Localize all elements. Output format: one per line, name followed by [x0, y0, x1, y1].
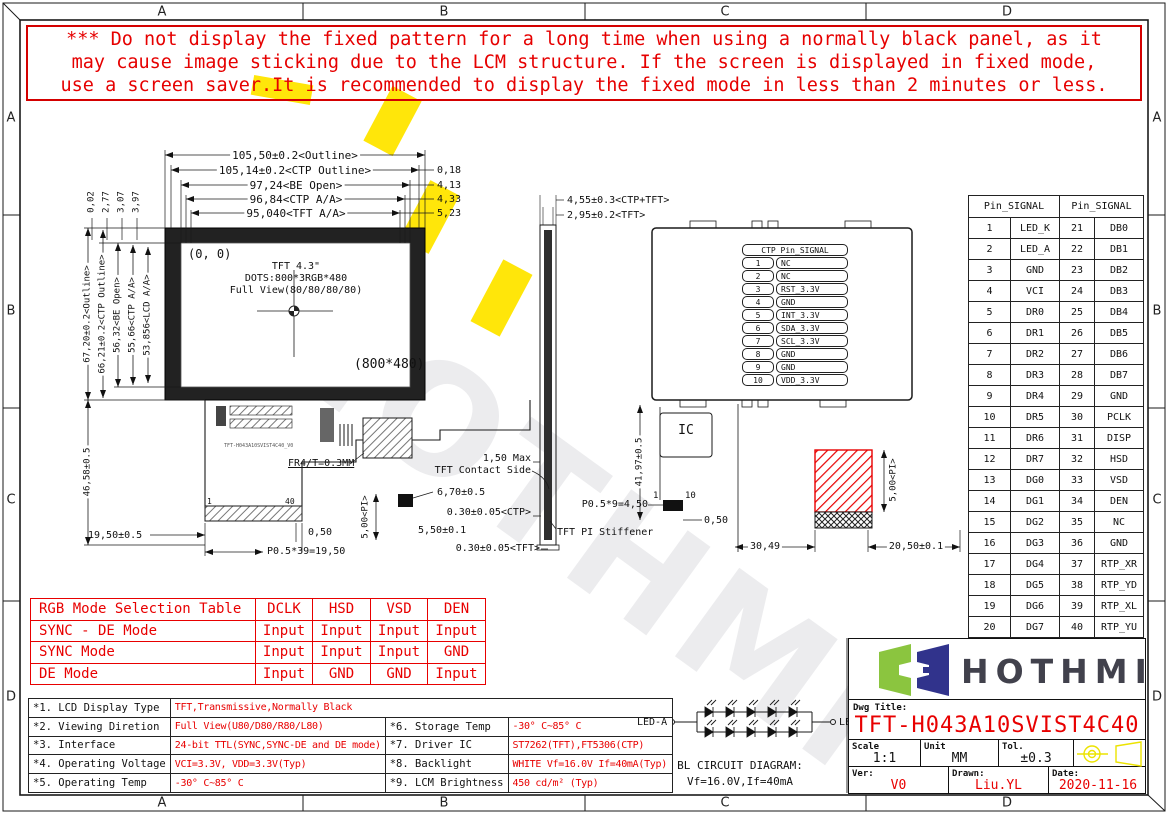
table-row: 9DR429GND [969, 386, 1144, 407]
table-cell: DB2 [1095, 260, 1144, 281]
dim-label: 67,20±0.2<Outline> [84, 263, 93, 365]
table-cell: 10 [969, 407, 1011, 428]
table-cell: 9 [742, 361, 774, 373]
table-cell: Input [256, 663, 313, 685]
dim-label: 5,00<PI> [890, 456, 899, 503]
spec-value: -30° C~85° C [170, 774, 385, 793]
table-cell: DG3 [1011, 533, 1060, 554]
rgb-header-cell: VSD [371, 599, 428, 621]
table-cell: 17 [969, 554, 1011, 575]
spec-value: 24-bit TTL(SYNC,SYNC-DE and DE mode) [170, 736, 385, 755]
table-row: 15DG235NC [969, 512, 1144, 533]
table-cell: HSD [1095, 449, 1144, 470]
table-row: 5DR025DB4 [969, 302, 1144, 323]
projection-cell [1074, 740, 1147, 766]
table-cell: DB1 [1095, 239, 1144, 260]
table-cell: 29 [1060, 386, 1095, 407]
dim-label: 5,23 [437, 209, 461, 219]
rgb-header-cell: HSD [313, 599, 371, 621]
zone-row-label: C [1152, 493, 1161, 508]
table-cell: DR1 [1011, 323, 1060, 344]
table-cell: RST_3.3V [776, 283, 848, 295]
table-cell: 3 [969, 260, 1011, 281]
table-row: 18DG538RTP_YD [969, 575, 1144, 596]
table-cell: 7 [969, 344, 1011, 365]
pin-table-header: Pin_SIGNAL [1060, 196, 1144, 218]
date-value: 2020-11-16 [1049, 778, 1147, 793]
table-cell: LED_A [1011, 239, 1060, 260]
spec-label: *9. LCM Brightness [385, 774, 508, 793]
table-row: 13DG033VSD [969, 470, 1144, 491]
table-cell: DE Mode [31, 663, 256, 685]
zone-row-label: B [7, 304, 16, 319]
table-cell: 4 [742, 296, 774, 308]
dim-label: 0.30±0.05<TFT> [456, 544, 540, 554]
table-row: 10DR530PCLK [969, 407, 1144, 428]
fpc-part-code: TFT-H043A10SVIST4C40_V0 [224, 444, 293, 449]
table-cell: NC [776, 257, 848, 269]
dim-label: 0,18 [437, 166, 461, 176]
table-cell: GND [371, 663, 428, 685]
spec-label: *5. Operating Temp [29, 774, 171, 793]
title-block: HOTHMI Dwg Title: TFT-H043A10SVIST4C40 S… [848, 638, 1146, 794]
hothmi-logo-text: HOTHMI [961, 652, 1154, 691]
scale-cell: Scale 1:1 [849, 740, 921, 766]
panel-view-label: Full View(80/80/80/80) [230, 286, 362, 296]
table-cell: SYNC - DE Mode [31, 620, 256, 642]
table-cell: GND [428, 642, 486, 664]
zone-col-label: C [720, 5, 729, 20]
table-row: 10VDD_3.3V [742, 374, 848, 386]
dwg-title-value: TFT-H043A10SVIST4C40 [849, 713, 1145, 738]
dim-label: TFT Contact Side [435, 466, 531, 476]
spec-value: 450 cd/m² (Typ) [508, 774, 672, 793]
tolerance-cell: Tol. ±0.3 [999, 740, 1074, 766]
version-value: V0 [849, 778, 948, 793]
table-row: 1LED_K21DB0 [969, 218, 1144, 239]
dim-label: 96,84<CTP A/A> [248, 194, 345, 205]
table-cell: 36 [1060, 533, 1095, 554]
table-cell: GND [776, 348, 848, 360]
zone-col-label: C [720, 796, 729, 811]
table-cell: 6 [969, 323, 1011, 344]
table-cell: DB0 [1095, 218, 1144, 239]
pin-number-label: 40 [285, 498, 295, 506]
table-row: *5. Operating Temp -30° C~85° C *9. LCM … [29, 774, 673, 793]
table-cell: 27 [1060, 344, 1095, 365]
table-row: *2. Viewing Diretion Full View(U80/D80/R… [29, 717, 673, 736]
table-row: 6DR126DB5 [969, 323, 1144, 344]
table-row: 20DG740RTP_YU [969, 617, 1144, 638]
panel-dots-label: DOTS:800*3RGB*480 [245, 274, 347, 284]
table-cell: 25 [1060, 302, 1095, 323]
zone-col-label: D [1002, 796, 1012, 811]
spec-label: *3. Interface [29, 736, 171, 755]
dim-label: 4,13 [437, 181, 461, 191]
table-cell: 5 [742, 309, 774, 321]
dim-label: 0.30±0.05<CTP> [447, 508, 531, 518]
table-cell: 24 [1060, 281, 1095, 302]
table-cell: 40 [1060, 617, 1095, 638]
table-row: 8GND [742, 348, 848, 360]
warning-line: may cause image sticking due to the LCM … [72, 54, 1097, 73]
bl-diagram-subtitle: Vf=16.0V,If=40mA [687, 776, 793, 787]
dim-label: 95,040<TFT A/A> [244, 208, 347, 219]
table-cell: DB6 [1095, 344, 1144, 365]
rgb-mode-table: RGB Mode Selection Table DCLK HSD VSD DE… [30, 598, 486, 685]
ic-label: IC [678, 424, 694, 437]
spec-label: *8. Backlight [385, 755, 508, 774]
table-cell: NC [776, 270, 848, 282]
table-cell: SYNC Mode [31, 642, 256, 664]
zone-row-label: A [1153, 111, 1162, 126]
table-cell: SCL_3.3V [776, 335, 848, 347]
table-cell: DR4 [1011, 386, 1060, 407]
table-row: *4. Operating Voltage VCI=3.3V, VDD=3.3V… [29, 755, 673, 774]
table-cell: DG0 [1011, 470, 1060, 491]
table-row: *3. Interface 24-bit TTL(SYNC,SYNC-DE an… [29, 736, 673, 755]
table-cell: INT_3.3V [776, 309, 848, 321]
date-cell: Date: 2020-11-16 [1049, 767, 1147, 793]
spec-value: Full View(U80/D80/R80/L80) [170, 717, 385, 736]
table-cell: DEN [1095, 491, 1144, 512]
table-cell: GND [1095, 386, 1144, 407]
table-cell: RTP_XL [1095, 596, 1144, 617]
dim-label: 0,02 [88, 191, 97, 213]
spec-value: ST7262(TFT),FT5306(CTP) [508, 736, 672, 755]
dim-label: 3,97 [133, 191, 142, 213]
table-row: 16DG336GND [969, 533, 1144, 554]
table-cell: Input [256, 620, 313, 642]
rgb-header-cell: DEN [428, 599, 486, 621]
table-row: 3RST_3.3V [742, 283, 848, 295]
unit-cell: Unit MM [921, 740, 999, 766]
table-row: 7DR227DB6 [969, 344, 1144, 365]
table-cell: 10 [742, 374, 774, 386]
table-cell: 7 [742, 335, 774, 347]
version-row: Ver: V0 Drawn: Liu.YL Date: 2020-11-16 [849, 767, 1145, 793]
table-cell: DR6 [1011, 428, 1060, 449]
table-cell: 38 [1060, 575, 1095, 596]
table-cell: 14 [969, 491, 1011, 512]
table-row: 3GND23DB2 [969, 260, 1144, 281]
dim-label: 3,07 [118, 191, 127, 213]
table-header-row: RGB Mode Selection Table DCLK HSD VSD DE… [31, 599, 486, 621]
drawn-value: Liu.YL [949, 778, 1048, 793]
table-row: 17DG437RTP_XR [969, 554, 1144, 575]
table-cell: GND [776, 361, 848, 373]
table-cell: 1 [969, 218, 1011, 239]
scale-row: Scale 1:1 Unit MM Tol. ±0.3 [849, 740, 1145, 767]
table-cell: 15 [969, 512, 1011, 533]
spec-value: WHITE Vf=16.0V If=40mA(Typ) [508, 755, 672, 774]
table-cell: DB4 [1095, 302, 1144, 323]
dwg-title-label: Dwg Title: [853, 703, 907, 713]
dim-label: 5,50±0.1 [418, 526, 466, 536]
warning-line: use a screen saver.It is recommended to … [61, 77, 1108, 96]
table-row: 1NC [742, 257, 848, 269]
table-row: 12DR732HSD [969, 449, 1144, 470]
table-cell: VCI [1011, 281, 1060, 302]
rgb-header-cell: DCLK [256, 599, 313, 621]
dim-label: FR4/T=0.3MM [288, 459, 354, 469]
dim-label: 20,50±0.1 [887, 542, 945, 552]
spec-value: TFT,Transmissive,Normally Black [170, 699, 672, 718]
bl-diagram-title: BL CIRCUIT DIAGRAM: [677, 760, 803, 771]
drawn-cell: Drawn: Liu.YL [949, 767, 1049, 793]
table-row: 14DG134DEN [969, 491, 1144, 512]
zone-col-label: D [1002, 5, 1012, 20]
table-cell: 11 [969, 428, 1011, 449]
table-cell: Input [256, 642, 313, 664]
table-cell: NC [1095, 512, 1144, 533]
dim-label: 46,58±0.5 [84, 446, 93, 499]
dim-label: TFT PI Stiffener [557, 528, 653, 538]
table-cell: 33 [1060, 470, 1095, 491]
table-cell: DG1 [1011, 491, 1060, 512]
dwg-title-row: Dwg Title: TFT-H043A10SVIST4C40 [849, 700, 1145, 740]
table-cell: 30 [1060, 407, 1095, 428]
table-cell: DR5 [1011, 407, 1060, 428]
table-cell: SDA_3.3V [776, 322, 848, 334]
table-row: 7SCL_3.3V [742, 335, 848, 347]
dim-label: 105,50±0.2<Outline> [230, 150, 360, 161]
table-cell: DB7 [1095, 365, 1144, 386]
table-cell: RTP_YU [1095, 617, 1144, 638]
table-cell: 3 [742, 283, 774, 295]
dim-label: 105,14±0.2<CTP Outline> [217, 165, 373, 176]
dim-label: P0.5*9=4,50 [582, 500, 648, 510]
table-cell: LED_K [1011, 218, 1060, 239]
dim-label: 4,55±0.3<CTP+TFT> [567, 196, 669, 206]
table-cell: DR2 [1011, 344, 1060, 365]
table-cell: 37 [1060, 554, 1095, 575]
table-cell: 22 [1060, 239, 1095, 260]
table-cell: 1 [742, 257, 774, 269]
table-cell: 9 [969, 386, 1011, 407]
table-cell: 16 [969, 533, 1011, 554]
table-cell: DG2 [1011, 512, 1060, 533]
zone-col-label: B [440, 5, 449, 20]
table-row: 4VCI24DB3 [969, 281, 1144, 302]
table-cell: GND [1095, 533, 1144, 554]
table-row: 9GND [742, 361, 848, 373]
spec-value: VCI=3.3V, VDD=3.3V(Typ) [170, 755, 385, 774]
spec-label: *7. Driver IC [385, 736, 508, 755]
spec-table: *1. LCD Display Type TFT,Transmissive,No… [28, 698, 673, 793]
dim-label: 66,21±0.2<CTP Outline> [99, 252, 108, 375]
zone-row-label: D [6, 690, 16, 705]
table-cell: DG5 [1011, 575, 1060, 596]
dim-label: 41,97±0.5 [636, 436, 645, 489]
table-cell: 35 [1060, 512, 1095, 533]
table-row: 11DR631DISP [969, 428, 1144, 449]
pin-number-label: 1 [207, 498, 212, 506]
table-row: DE ModeInputGNDGNDInput [31, 663, 486, 685]
logo-area: HOTHMI [849, 639, 1145, 700]
tolerance-value: ±0.3 [999, 751, 1073, 766]
scale-value: 1:1 [849, 751, 920, 766]
zone-col-label: A [158, 796, 167, 811]
pin-number-label: 1 [653, 492, 658, 501]
dim-label: 55,66<CTP A/A> [129, 275, 138, 355]
zone-row-label: D [1152, 690, 1162, 705]
dim-label: 1,50 Max [483, 454, 531, 464]
dim-label: 19,50±0.5 [88, 531, 142, 541]
table-row: SYNC - DE ModeInputInputInputInput [31, 620, 486, 642]
dim-label: 4,33 [437, 195, 461, 205]
dim-label: 5,00<PI> [362, 493, 371, 540]
spec-label: *4. Operating Voltage [29, 755, 171, 774]
table-cell: Input [371, 642, 428, 664]
table-cell: 19 [969, 596, 1011, 617]
projection-symbol-icon [1075, 741, 1147, 767]
ctp-table-header: CTP Pin_SIGNAL [742, 244, 848, 256]
table-row: 6SDA_3.3V [742, 322, 848, 334]
table-cell: PCLK [1095, 407, 1144, 428]
table-row: 8DR328DB7 [969, 365, 1144, 386]
spec-label: *6. Storage Temp [385, 717, 508, 736]
panel-title-label: TFT 4.3" [272, 262, 320, 272]
zone-row-label: B [1153, 304, 1162, 319]
zone-col-label: A [158, 5, 167, 20]
table-cell: DB5 [1095, 323, 1144, 344]
table-row: 5INT_3.3V [742, 309, 848, 321]
dim-label: 97,24<BE Open> [248, 180, 345, 191]
dim-label: 0,50 [308, 528, 332, 538]
dim-label: 30,49 [748, 542, 782, 552]
zone-row-label: A [7, 111, 16, 126]
table-cell: 4 [969, 281, 1011, 302]
pin-number-label: 10 [685, 492, 696, 501]
table-header-row: Pin_SIGNAL Pin_SIGNAL [969, 196, 1144, 218]
table-cell: 12 [969, 449, 1011, 470]
rgb-header-cell: RGB Mode Selection Table [31, 599, 256, 621]
table-cell: 8 [969, 365, 1011, 386]
table-cell: 23 [1060, 260, 1095, 281]
dim-label: 2,95±0.2<TFT> [567, 211, 645, 221]
table-header-row: CTP Pin_SIGNAL [742, 244, 848, 256]
table-cell: 39 [1060, 596, 1095, 617]
table-cell: DR7 [1011, 449, 1060, 470]
dim-label: P0.5*39=19,50 [267, 547, 345, 557]
resolution-label: (800*480) [354, 358, 424, 371]
table-cell: DB3 [1095, 281, 1144, 302]
table-cell: 13 [969, 470, 1011, 491]
spec-label: *1. LCD Display Type [29, 699, 171, 718]
spec-label: *2. Viewing Diretion [29, 717, 171, 736]
table-cell: DR3 [1011, 365, 1060, 386]
table-cell: 32 [1060, 449, 1095, 470]
version-cell: Ver: V0 [849, 767, 949, 793]
table-row: 19DG639RTP_XL [969, 596, 1144, 617]
pin-table-header: Pin_SIGNAL [969, 196, 1060, 218]
table-cell: 31 [1060, 428, 1095, 449]
table-cell: 18 [969, 575, 1011, 596]
ctp-pin-table: CTP Pin_SIGNAL 1NC2NC3RST_3.3V4GND5INT_3… [740, 243, 850, 387]
table-cell: 28 [1060, 365, 1095, 386]
table-cell: GND [313, 663, 371, 685]
drawing-sheet: HOTHMI [0, 0, 1168, 814]
dim-label: 53,856<LCD A/A> [144, 272, 153, 357]
zone-col-label: B [440, 796, 449, 811]
table-cell: DISP [1095, 428, 1144, 449]
dim-label: 0,50 [704, 516, 728, 526]
table-cell: 2 [742, 270, 774, 282]
dim-label: 2,77 [103, 191, 112, 213]
pin-signal-table: Pin_SIGNAL Pin_SIGNAL 1LED_K21DB02LED_A2… [968, 195, 1144, 638]
dim-label: 56,32<BE Open> [114, 275, 123, 355]
table-cell: GND [1011, 260, 1060, 281]
dim-label: 6,70±0.5 [437, 488, 485, 498]
table-cell: Input [371, 620, 428, 642]
table-cell: Input [428, 663, 486, 685]
table-row: 2NC [742, 270, 848, 282]
table-cell: 26 [1060, 323, 1095, 344]
table-cell: 2 [969, 239, 1011, 260]
table-cell: 20 [969, 617, 1011, 638]
warning-line: *** Do not display the fixed pattern for… [66, 31, 1102, 50]
table-cell: DG6 [1011, 596, 1060, 617]
table-cell: DR0 [1011, 302, 1060, 323]
table-cell: VSD [1095, 470, 1144, 491]
table-cell: RTP_YD [1095, 575, 1144, 596]
table-row: 2LED_A22DB1 [969, 239, 1144, 260]
zone-row-label: C [6, 493, 15, 508]
table-cell: RTP_XR [1095, 554, 1144, 575]
table-cell: 34 [1060, 491, 1095, 512]
table-row: *1. LCD Display Type TFT,Transmissive,No… [29, 699, 673, 718]
unit-value: MM [921, 751, 998, 766]
table-cell: VDD_3.3V [776, 374, 848, 386]
table-cell: Input [428, 620, 486, 642]
table-cell: Input [313, 642, 371, 664]
table-cell: DG7 [1011, 617, 1060, 638]
table-row: 4GND [742, 296, 848, 308]
table-row: SYNC ModeInputInputInputGND [31, 642, 486, 664]
table-cell: 6 [742, 322, 774, 334]
burn-in-warning: *** Do not display the fixed pattern for… [27, 26, 1141, 100]
table-cell: Input [313, 620, 371, 642]
table-cell: 21 [1060, 218, 1095, 239]
table-cell: GND [776, 296, 848, 308]
table-cell: DG4 [1011, 554, 1060, 575]
table-cell: 5 [969, 302, 1011, 323]
led-anode-label: LED-A [637, 718, 667, 728]
origin-label: (0, 0) [188, 248, 231, 260]
table-cell: 8 [742, 348, 774, 360]
